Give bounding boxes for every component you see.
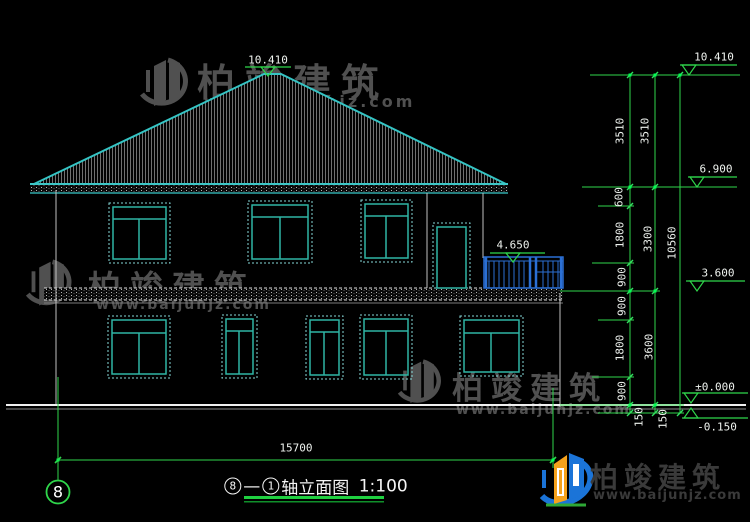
elevation-zero: ±0.000	[695, 382, 735, 393]
watermark-logo-top	[142, 58, 186, 106]
elevation-site: -0.150	[697, 422, 737, 433]
brand-logo	[542, 453, 590, 505]
window-1f-1	[108, 316, 170, 378]
dim-overall-width	[55, 388, 556, 468]
window-1f-4	[360, 315, 412, 379]
cad-elevation-drawing: 柏竣建筑 www.baijunjz.com 柏竣建筑 www.baijunjz.…	[0, 0, 750, 522]
drawing-title: 8—1轴立面图 1:100	[224, 474, 407, 499]
dim-inner-3510: 3510	[615, 118, 626, 145]
drawing-canvas	[0, 0, 750, 522]
dim-inner-1800b: 1800	[615, 335, 626, 362]
dim-mid-3510: 3510	[640, 118, 651, 145]
elevation-top-right: 10.410	[694, 52, 734, 63]
dim-inner-600: 600	[614, 187, 625, 207]
dim-inner-1800a: 1800	[615, 222, 626, 249]
window-1f-5	[460, 316, 523, 376]
watermark-logo-right	[400, 360, 439, 403]
roof	[34, 74, 506, 184]
dim-inner-150: 150	[634, 407, 645, 427]
dim-mid-150: 150	[658, 409, 669, 429]
floor-band	[44, 288, 563, 303]
window-2f-1	[109, 203, 170, 263]
balcony-door	[433, 223, 470, 288]
title-dash: —	[243, 476, 260, 496]
dim-inner-900a: 900	[617, 267, 628, 287]
logo-url-text: www.baijunjz.com	[593, 488, 742, 503]
window-1f-2	[222, 315, 257, 378]
dim-overall-height: 10560	[667, 226, 678, 259]
window-1f-3	[306, 316, 343, 379]
eave-band	[30, 184, 508, 193]
elevation-balcony: 4.650	[496, 240, 529, 251]
window-2f-3	[361, 200, 412, 262]
axis-bubble-label: 8	[53, 483, 63, 502]
dim-mid-3600: 3600	[644, 334, 655, 361]
dim-inner-900c: 900	[617, 381, 628, 401]
window-2f-2	[248, 201, 312, 263]
dim-overall-width-label: 15700	[279, 443, 312, 454]
dim-mid-3300: 3300	[643, 226, 654, 253]
elevation-peak: 10.410	[248, 55, 288, 66]
title-name: 轴立面图	[281, 474, 349, 499]
title-scale: 1:100	[359, 476, 408, 496]
balcony-railing	[484, 257, 563, 288]
title-axis-start: 8	[224, 478, 241, 495]
dim-inner-900b: 900	[617, 296, 628, 316]
elevation-floor2: 3.600	[701, 268, 734, 279]
title-axis-end: 1	[262, 478, 279, 495]
elevation-eave: 6.900	[699, 164, 732, 175]
